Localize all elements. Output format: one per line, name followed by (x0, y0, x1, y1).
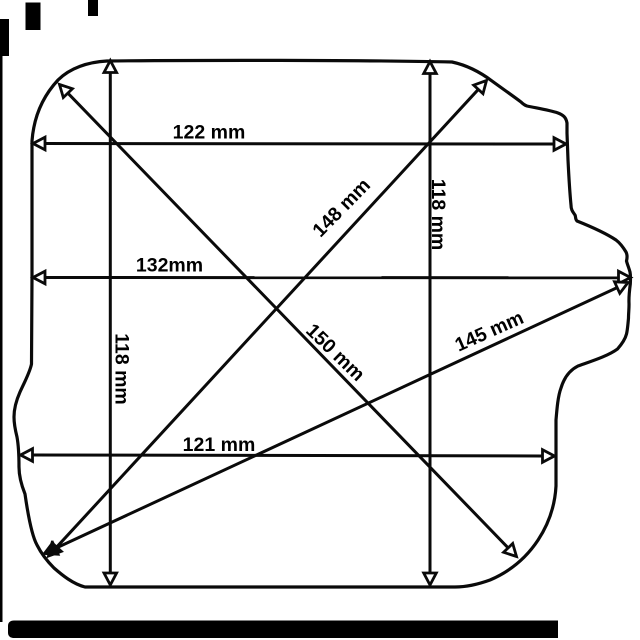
svg-text:132mm: 132mm (136, 255, 203, 277)
svg-text:122 mm: 122 mm (173, 122, 246, 144)
svg-text:118 mm: 118 mm (111, 333, 133, 405)
svg-text:118 mm: 118 mm (427, 179, 449, 251)
svg-text:121 mm: 121 mm (183, 434, 256, 456)
